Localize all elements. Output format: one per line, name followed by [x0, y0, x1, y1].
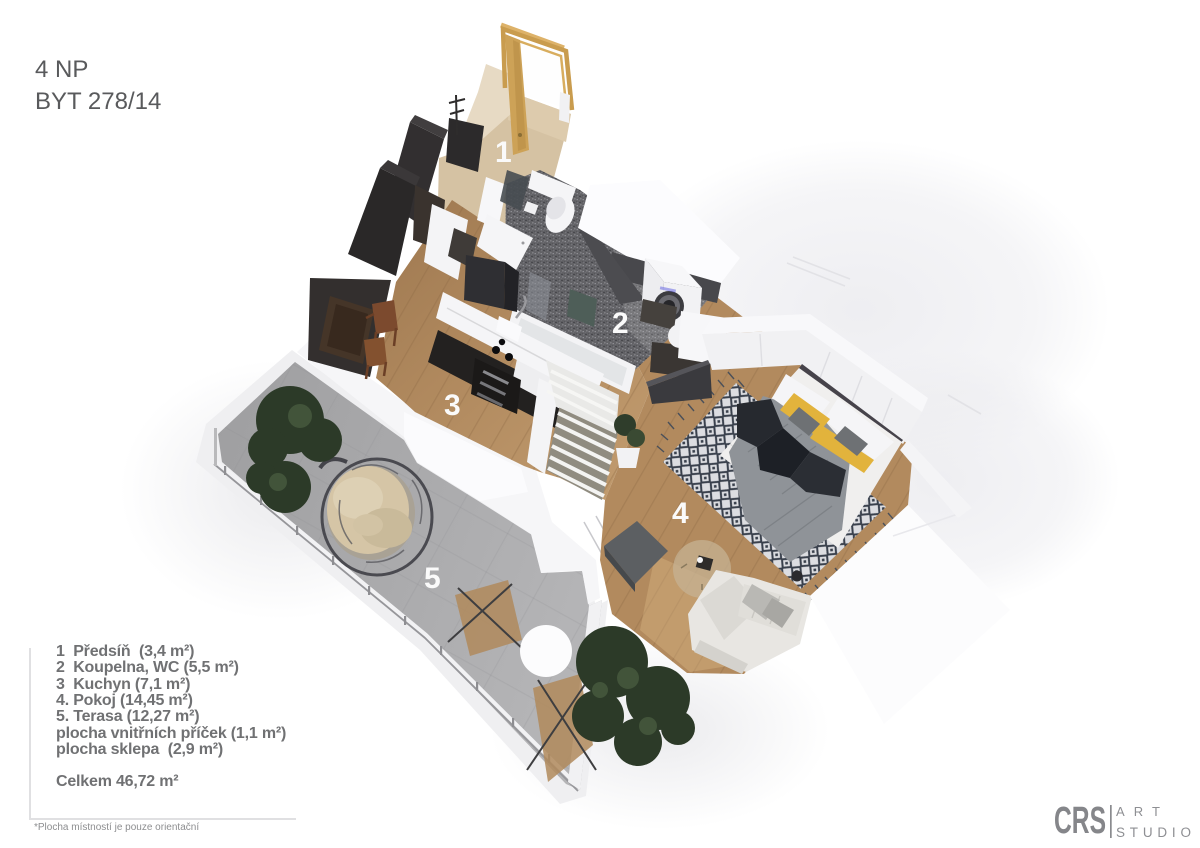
svg-text:4. Pokoj (14,45 m²): 4. Pokoj (14,45 m²)	[56, 692, 193, 709]
svg-text:*Plocha místností je pouze ori: *Plocha místností je pouze orientační	[34, 822, 199, 833]
svg-text:CRS: CRS	[1054, 800, 1106, 842]
svg-text:plocha vnitřních příček (1,1 m: plocha vnitřních příček (1,1 m²)	[56, 725, 286, 742]
svg-text:2: 2	[612, 307, 629, 340]
svg-text:3 Kuchyn (7,1 m²): 3 Kuchyn (7,1 m²)	[56, 676, 190, 693]
svg-text:4: 4	[672, 497, 689, 530]
svg-text:3: 3	[444, 389, 461, 422]
svg-text:Celkem 46,72 m²: Celkem 46,72 m²	[56, 773, 178, 790]
svg-text:5. Terasa (12,27 m²): 5. Terasa (12,27 m²)	[56, 708, 199, 725]
svg-text:ART: ART	[1116, 804, 1160, 819]
svg-text:BYT 278/14: BYT 278/14	[35, 88, 161, 115]
svg-text:1 Předsíň (3,4 m²): 1 Předsíň (3,4 m²)	[56, 643, 194, 660]
svg-text:4 NP: 4 NP	[35, 56, 88, 83]
svg-text:5: 5	[424, 562, 441, 595]
svg-text:2 Koupelna, WC (5,5 m²): 2 Koupelna, WC (5,5 m²)	[56, 659, 239, 676]
svg-text:plocha sklepa (2,9 m²): plocha sklepa (2,9 m²)	[56, 741, 223, 758]
svg-text:1: 1	[495, 136, 512, 169]
